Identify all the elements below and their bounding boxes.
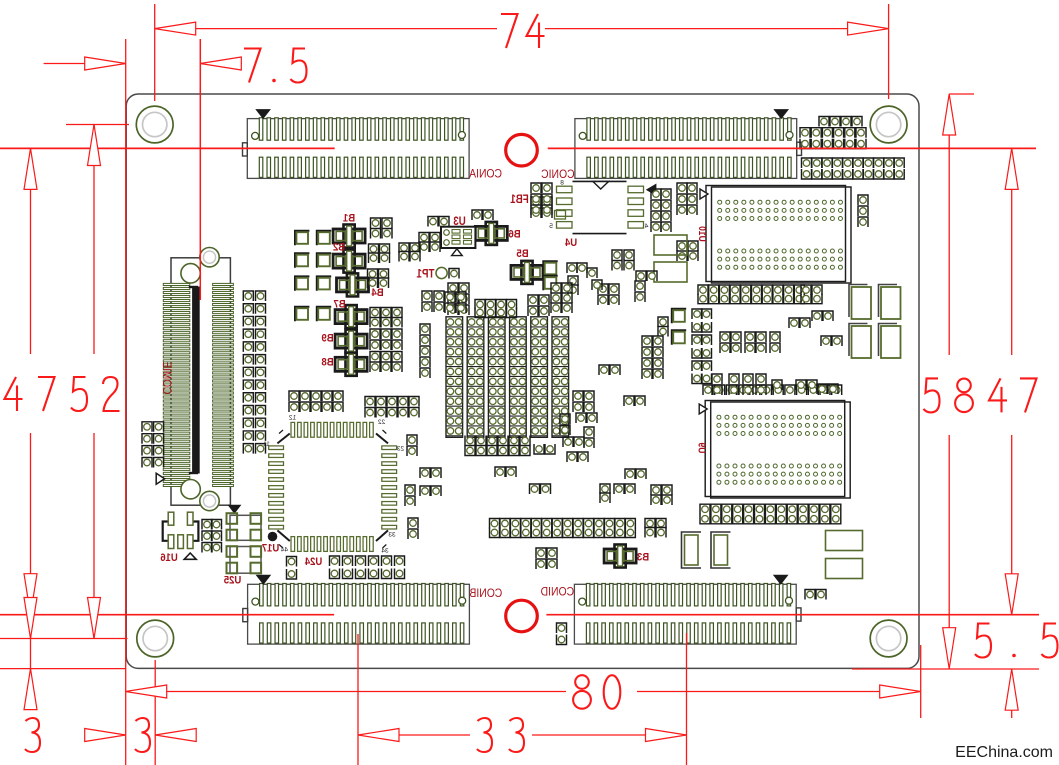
svg-text:44: 44 [281,547,289,554]
svg-text:11: 11 [263,441,270,448]
svg-text:CONID: CONID [541,586,574,599]
svg-text:U9: U9 [696,443,707,454]
svg-text:COMIE: COMIE [160,362,173,395]
svg-text:TP1: TP1 [416,268,434,281]
svg-text:U16: U16 [160,552,178,564]
svg-text:CONIB: CONIB [469,587,502,600]
svg-text:B9: B9 [321,333,333,345]
svg-text:4: 4 [644,223,648,230]
svg-text:U4: U4 [565,237,577,249]
svg-text:B3: B3 [637,552,649,564]
svg-text:B6: B6 [508,229,520,241]
svg-text:34: 34 [381,548,389,555]
svg-text:22: 22 [378,419,386,426]
svg-text:B5: B5 [516,248,528,260]
svg-text:EEChina.com: EEChina.com [955,744,1053,761]
svg-text:8: 8 [560,180,564,187]
svg-text:CONIC: CONIC [541,168,574,181]
svg-text:B1: B1 [343,213,355,225]
svg-text:B4: B4 [371,287,383,299]
svg-text:33: 33 [388,532,396,539]
svg-text:12: 12 [289,415,297,422]
svg-text:U17: U17 [262,543,280,555]
svg-text:U3: U3 [453,215,466,228]
svg-text:U24: U24 [305,556,323,568]
svg-text:U25: U25 [224,575,242,587]
svg-text:B2: B2 [333,242,345,254]
svg-text:B7: B7 [333,299,345,311]
svg-text:FB1: FB1 [510,193,529,206]
svg-text:CONIA: CONIA [469,168,502,181]
svg-text:U10: U10 [697,226,708,242]
svg-text:B8: B8 [321,357,333,369]
svg-text:5: 5 [549,223,553,230]
svg-text:23: 23 [397,446,405,453]
